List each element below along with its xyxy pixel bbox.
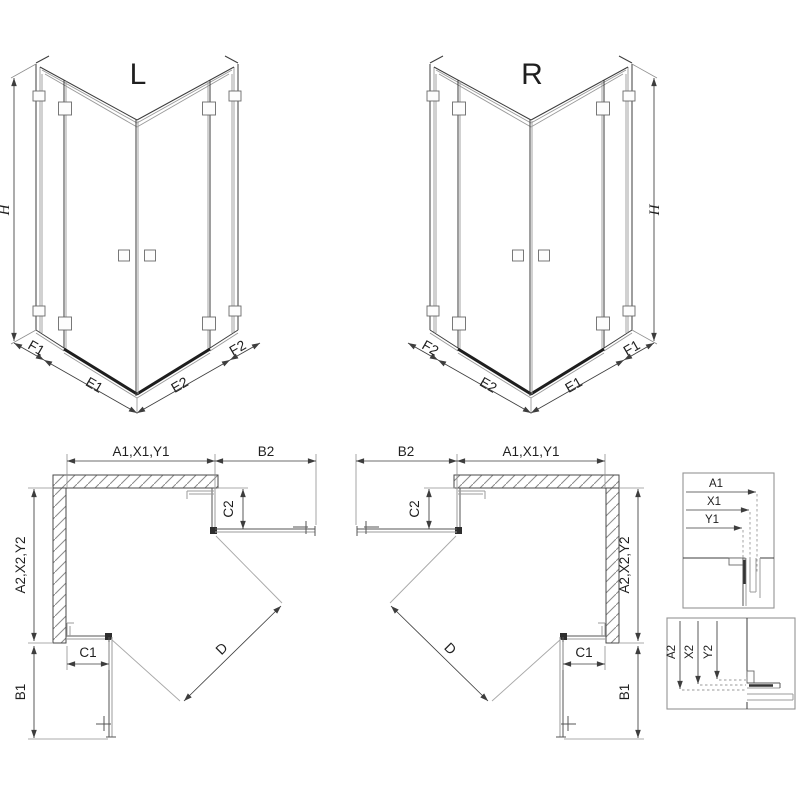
plan-view-left-dimensions: [28, 454, 316, 739]
iso-view-right-right-half: [531, 56, 654, 413]
drawing-canvas: HF1E1E2F2LHF2E2E1F1RA1,X1,Y1B2A2,X2,Y2C2…: [0, 0, 800, 800]
plan-view-left-label-top-width: A1,X1,Y1: [112, 444, 169, 459]
iso-view-left-label-height: H: [0, 203, 13, 216]
iso-view-left-label-outer-right: F2: [226, 337, 248, 359]
iso-view-right: HF2E2E1F1R: [408, 56, 663, 414]
plan-view-left-label-diagonal: D: [212, 639, 230, 657]
iso-view-left-label-variant: L: [130, 58, 147, 91]
plan-view-left-fixed-bottom-panel: [66, 623, 112, 640]
plan-view-right-fixed-bottom-panel: [560, 623, 606, 640]
detail-v-label-0: A2: [666, 645, 678, 659]
plan-view-right-walls: [454, 475, 619, 643]
detail-box-vertical-dims: A2X2Y2: [666, 618, 795, 709]
plan-view-left-door-swing: [111, 536, 282, 701]
detail-h-label-0: A1: [709, 478, 723, 490]
plan-view-left-open-door-bottom: [96, 637, 116, 737]
detail-v-label-2: Y2: [703, 645, 715, 659]
plan-view-left-walls: [53, 475, 218, 643]
plan-view-left-label-door-top: B2: [258, 444, 275, 459]
plan-view-left-fixed-side-panel: [187, 488, 217, 534]
plan-view-right-label-fixed-bottom: C1: [575, 645, 592, 660]
iso-view-right-label-variant: R: [521, 58, 543, 91]
detail-h-label-1: X1: [707, 496, 721, 508]
plan-view-right-label-fixed-side: C2: [407, 500, 422, 517]
plan-view-right-fixed-side-panel: [455, 488, 485, 534]
iso-view-left: HF1E1E2F2L: [0, 56, 260, 414]
plan-view-right-dimensions: [356, 454, 644, 739]
detail-v-label-1: X2: [684, 645, 696, 659]
plan-view-right-label-door-side: B1: [617, 684, 632, 701]
plan-view-right-label-side-depth: A2,X2,Y2: [617, 536, 632, 593]
iso-view-left-height-dimension: H: [0, 64, 36, 344]
plan-view-left-open-door-top: [215, 521, 315, 536]
plan-view-right-label-diagonal: D: [441, 639, 459, 657]
plan-view-right: A1,X1,Y1B2A2,X2,Y2C2C1B1D: [356, 444, 644, 739]
iso-view-right-label-outer-left: F2: [419, 337, 441, 359]
plan-view-right-label-door-top: B2: [398, 444, 415, 459]
plan-view-right-open-door-bottom: [556, 637, 576, 737]
iso-view-right-height-dimension: H: [632, 64, 663, 344]
plan-view-right-open-door-top: [357, 521, 457, 536]
detail-box-horizontal-dims: A1X1Y1: [683, 473, 774, 608]
shower-enclosure-technical-drawing: HF1E1E2F2LHF2E2E1F1RA1,X1,Y1B2A2,X2,Y2C2…: [0, 0, 800, 800]
plan-view-left-label-fixed-side: C2: [221, 500, 236, 517]
iso-view-left-right-half: [137, 56, 260, 413]
iso-view-left-left-half: [14, 56, 137, 413]
iso-view-right-label-height: H: [647, 203, 663, 216]
iso-view-right-left-half: [408, 56, 531, 413]
plan-view-left-label-fixed-bottom: C1: [79, 645, 96, 660]
plan-view-right-door-swing: [390, 536, 561, 701]
detail-h-label-2: Y1: [705, 514, 719, 526]
plan-view-left-label-side-depth: A2,X2,Y2: [13, 536, 28, 593]
plan-view-right-label-top-width: A1,X1,Y1: [502, 444, 559, 459]
iso-view-right-label-outer-right: F1: [620, 337, 642, 359]
plan-view-left-label-door-side: B1: [13, 684, 28, 701]
plan-view-left: A1,X1,Y1B2A2,X2,Y2C2C1B1D: [13, 444, 316, 739]
iso-view-left-label-outer-left: F1: [25, 337, 47, 359]
